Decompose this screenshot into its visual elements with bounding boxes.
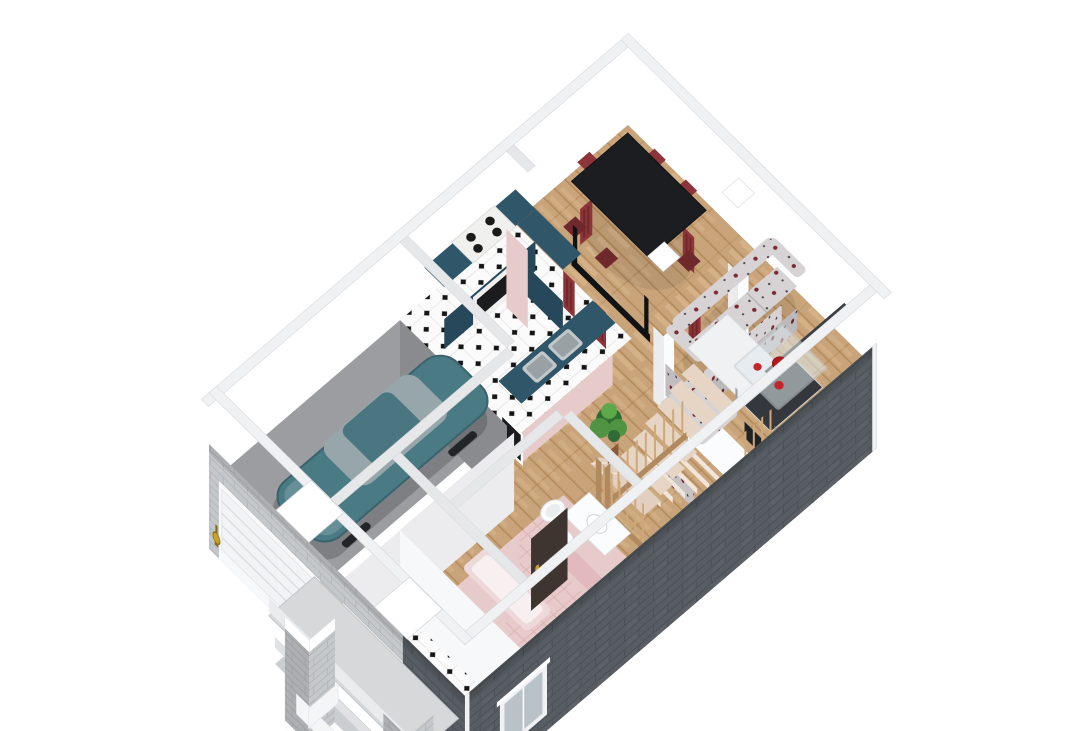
floorplan-stage (0, 0, 1080, 731)
corner-board (872, 343, 877, 452)
corner-board (465, 692, 470, 731)
column-faces-sw2 (653, 326, 663, 410)
floorplan-rendering (0, 0, 1080, 731)
